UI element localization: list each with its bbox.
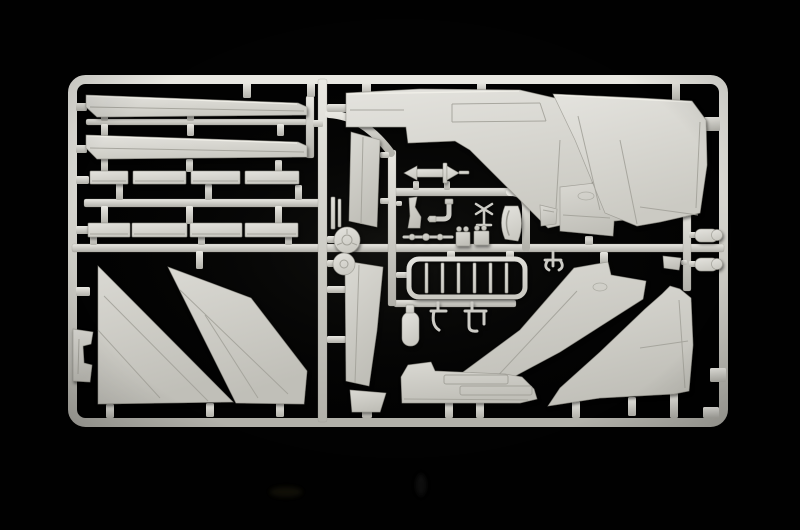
reflection-smudge-a [270,487,302,497]
runner-flap-mid [84,199,322,207]
pitot-probe-shape [443,163,447,183]
sprue-stub [186,206,193,224]
sprue-stub [327,286,346,293]
duct-bracket [540,205,557,226]
sprue-stub [101,206,108,224]
flap-segment-8 [245,223,298,237]
pod-half-a [695,229,723,242]
flap-segment-7-shape [190,223,242,237]
bottle-tank-shape [406,305,414,313]
pod-half-a-shape [712,230,723,241]
valve-box-a-shape [456,232,470,246]
sprue-stub [703,407,719,418]
sprue-stub [276,403,284,417]
sprue-stub [116,183,123,200]
runner-vertical-left [318,79,327,422]
flap-segment-8-shape [245,223,298,237]
valve-box-a-shape [464,227,469,232]
antenna-blade-a-shape [331,197,335,229]
pitot-probe-shape [459,171,469,174]
sprue-stub [198,236,205,245]
runner-main-horizontal [72,244,724,252]
sprue-stub [277,124,284,136]
runner-detail-upper [394,188,514,196]
valve-box-b [474,226,489,246]
sprue-stub [196,251,203,269]
sprue-photo [0,0,800,530]
intake-cowl [502,206,522,241]
flap-segment-4 [245,171,299,184]
flap-segment-2 [133,171,186,184]
reflection-smudge-b [416,474,426,496]
boarding-ladder-shape [425,263,428,293]
sprue-stub [572,401,580,418]
linkage-rod-shape [409,234,415,240]
sprue-stub [186,159,193,172]
runner-vertical-mid [388,150,396,306]
sprue-stub [76,103,87,111]
sprue-stub [396,201,402,206]
flap-segment-6-shape [132,223,187,237]
sprue-stub [90,236,97,245]
sprue-stub [206,403,214,417]
flap-segment-6 [132,223,187,237]
sprue-stub [585,236,593,245]
sprue-stub [327,104,347,112]
pitot-probe-shape [417,169,443,177]
flap-segment-3-shape [191,171,240,184]
sprue-stub [380,198,389,204]
panel-strip-upper-shape [349,132,380,227]
sprue-stub [76,176,89,184]
junction-bracket-shape [663,256,681,270]
junction-bracket [663,256,681,270]
sprue-stub [681,260,687,265]
valve-box-b-shape [474,231,489,245]
flap-segment-5-shape [88,223,130,237]
sprue-stub [672,83,680,102]
sprue-stub [710,368,726,382]
sprue-stub [106,404,114,418]
flap-segment-1 [90,171,128,184]
sprue-stub [476,402,484,418]
sprue-stub [380,152,389,158]
linkage-rod-shape [437,234,443,240]
panel-foot-shape [350,390,386,412]
intake-cowl-shape [502,206,522,241]
flap-segment-4-shape [245,171,299,184]
bottle-tank-shape [402,312,419,346]
boarding-ladder-shape [457,263,460,293]
boarding-ladder-shape [505,263,508,293]
flap-segment-2-shape [133,171,186,184]
wheel-front [334,227,360,253]
sprue-stub [670,393,678,418]
sprue-stub [76,226,89,234]
sprue-stub [243,83,251,98]
sprue-stub [101,124,108,136]
valve-box-a-shape [457,227,462,232]
sprue-stub [76,145,87,153]
sprue-stub [327,336,346,343]
valve-box-b-shape [482,226,487,231]
flap-segment-1-shape [90,171,128,184]
pod-half-b [695,258,723,271]
sprue-stub [413,181,419,190]
sprue-stub [307,83,315,97]
pod-half-b-shape [712,259,723,270]
sprue-stub [187,124,194,136]
pipe-elbow-shape [445,199,453,204]
panel-foot [350,390,386,412]
panel-strip-upper [349,132,380,227]
boarding-ladder-shape [441,263,444,293]
flap-segment-7 [190,223,242,237]
flap-segment-5 [88,223,130,237]
linkage-rod-shape [423,234,430,241]
antenna-blade-a [331,197,335,229]
sprue-stub [275,206,282,224]
sprue-stub [285,236,292,245]
pipe-elbow-shape [429,216,436,222]
wheel-rear [333,253,355,275]
sprue-stub [295,185,302,200]
duct-bracket-shape [540,205,557,226]
sprue-stub [313,120,323,127]
sprue-stub [628,397,636,416]
sprue-stub [205,184,212,200]
boarding-ladder-shape [489,263,492,293]
sprue-stub [76,287,90,296]
sprue-stub [275,160,282,172]
boarding-ladder-shape [473,263,476,293]
sprue-stub [101,158,108,172]
antenna-blade-b [338,199,341,227]
flap-segment-3 [191,171,240,184]
wheel-rear-shape [333,253,355,275]
valve-box-b-shape [475,226,480,231]
runner-slat-thin [86,119,307,125]
photo-stage [0,0,800,530]
sprue-stub [445,402,453,418]
antenna-blade-b-shape [338,199,341,227]
